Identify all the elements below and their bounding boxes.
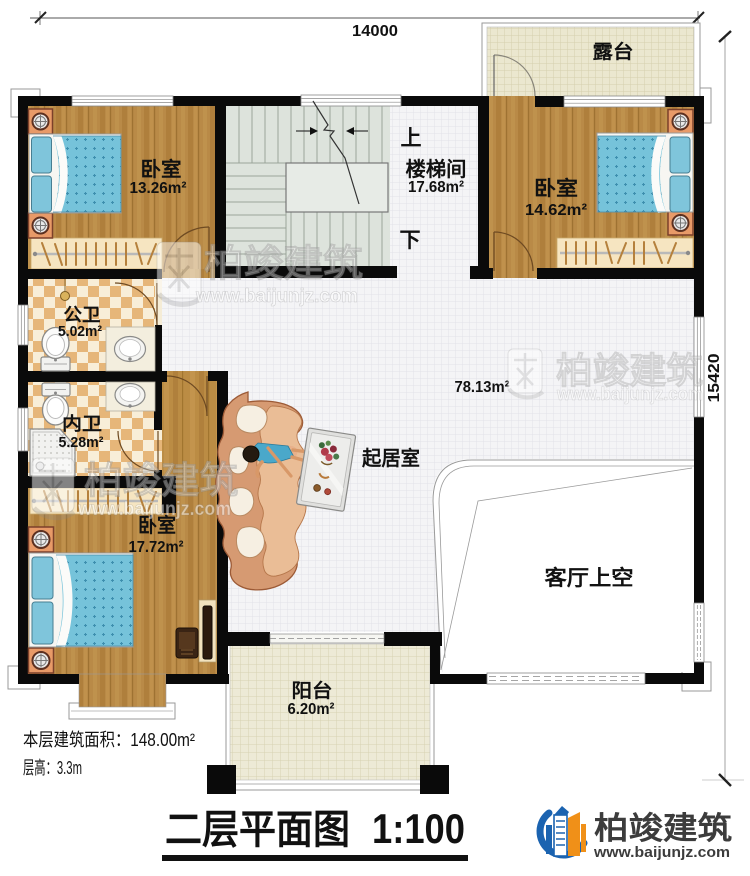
svg-text:二层平面图: 二层平面图 <box>165 808 350 852</box>
svg-text:露台: 露台 <box>593 40 634 63</box>
svg-text:柏竣建筑: 柏竣建筑 <box>594 811 732 846</box>
svg-text:柏竣建筑: 柏竣建筑 <box>84 459 238 501</box>
svg-text:78.13m²: 78.13m² <box>455 379 510 396</box>
svg-text:柏竣建筑: 柏竣建筑 <box>204 242 363 284</box>
svg-text:起居室: 起居室 <box>361 446 420 470</box>
svg-text:14000: 14000 <box>352 23 398 40</box>
svg-text:14.62m²: 14.62m² <box>525 202 587 219</box>
svg-text:6.20m²: 6.20m² <box>288 701 335 718</box>
svg-text:公卫: 公卫 <box>64 305 101 325</box>
svg-text:www.baijunjz.com: www.baijunjz.com <box>593 844 730 861</box>
svg-text:层高：3.3m: 层高：3.3m <box>23 758 82 778</box>
svg-text:上: 上 <box>401 127 422 150</box>
svg-text:13.26m²: 13.26m² <box>130 180 187 197</box>
svg-text:5.02m²: 5.02m² <box>58 323 102 340</box>
svg-text:www.baijunjz.com: www.baijunjz.com <box>195 286 358 307</box>
svg-text:内卫: 内卫 <box>62 413 102 434</box>
svg-text:卧室: 卧室 <box>534 176 578 200</box>
svg-text:17.72m²: 17.72m² <box>129 539 184 556</box>
svg-text:下: 下 <box>400 229 421 252</box>
svg-text:客厅上空: 客厅上空 <box>545 566 634 590</box>
svg-text:阳台: 阳台 <box>292 679 333 702</box>
svg-text:www.baijunjz.com: www.baijunjz.com <box>77 499 231 520</box>
svg-text:卧室: 卧室 <box>141 157 182 181</box>
svg-text:1:100: 1:100 <box>372 805 465 852</box>
svg-text:www.baijunjz.com: www.baijunjz.com <box>556 384 703 404</box>
svg-text:17.68m²: 17.68m² <box>408 179 464 196</box>
svg-text:15420: 15420 <box>706 353 723 402</box>
svg-text:楼梯间: 楼梯间 <box>406 157 467 181</box>
svg-text:本层建筑面积：148.00m²: 本层建筑面积：148.00m² <box>23 730 195 750</box>
svg-text:5.28m²: 5.28m² <box>59 434 104 451</box>
